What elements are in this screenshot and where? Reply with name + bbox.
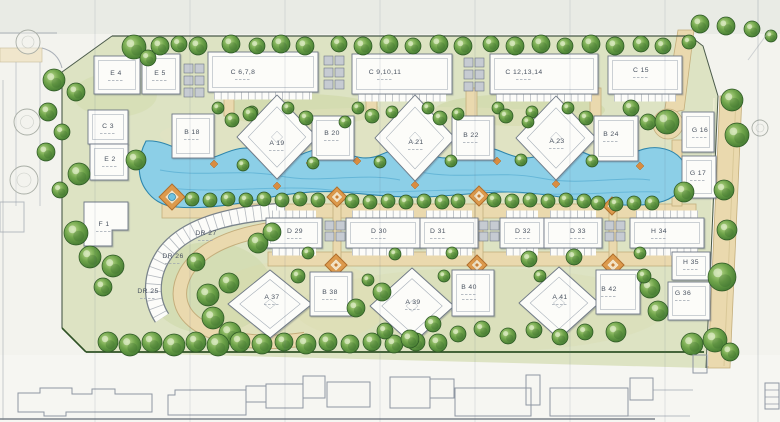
tree-icon xyxy=(239,193,253,207)
tree-shade xyxy=(457,113,462,118)
tree-icon xyxy=(452,108,464,120)
building-label-h35: H 35 xyxy=(683,259,699,266)
garage-building xyxy=(336,232,345,241)
tree-icon xyxy=(562,102,574,114)
tree-icon xyxy=(577,194,591,208)
tree-icon xyxy=(541,194,555,208)
garage-building xyxy=(325,232,334,241)
tree-shade xyxy=(480,327,487,334)
tree-icon xyxy=(606,37,624,55)
building-label-d32: D 32 xyxy=(515,228,531,235)
tree-icon xyxy=(249,38,265,54)
garage-building xyxy=(475,70,484,79)
tree-icon xyxy=(380,35,398,53)
tree-shade xyxy=(134,158,143,167)
tree-shade xyxy=(520,159,525,164)
tree-shade xyxy=(194,260,202,268)
tree-shade xyxy=(729,98,739,108)
tree-shade xyxy=(230,119,236,125)
tree-shade xyxy=(386,200,392,206)
outline-tree-icon xyxy=(14,109,40,135)
tree-shade xyxy=(287,107,292,112)
tree-shade xyxy=(208,199,214,205)
tree-shade xyxy=(74,90,82,98)
tree-icon xyxy=(487,193,501,207)
tree-shade xyxy=(296,275,302,281)
tree-icon xyxy=(272,35,290,53)
tree-shade xyxy=(127,343,137,353)
tree-icon xyxy=(474,321,490,337)
tree-shade xyxy=(51,78,61,88)
building-label-c91011: C 9,10,11 xyxy=(369,69,402,76)
scanned-site-plan: E 4E 5C 6,7,8C 9,10,11C 12,13,14C 15G 16… xyxy=(0,0,780,422)
tree-shade xyxy=(190,198,196,204)
tree-shade xyxy=(304,117,310,123)
tree-shade xyxy=(242,164,247,169)
tree-icon xyxy=(386,106,398,118)
building-label-b18: B 18 xyxy=(184,129,200,136)
tree-icon xyxy=(591,196,605,210)
tree-icon xyxy=(142,332,162,352)
tree-icon xyxy=(347,299,365,317)
tree-icon xyxy=(102,255,124,277)
tree-shade xyxy=(316,199,322,205)
tree-icon xyxy=(79,246,101,268)
tree-icon xyxy=(552,329,568,345)
building-label-g36: G 36 xyxy=(675,290,691,297)
building-footprint xyxy=(352,54,452,94)
tree-shade xyxy=(217,107,222,112)
tree-icon xyxy=(714,180,734,200)
tree-icon xyxy=(68,163,90,185)
tree-icon xyxy=(435,195,449,209)
tree-icon xyxy=(302,247,314,259)
tree-shade xyxy=(256,241,265,250)
tree-icon xyxy=(534,270,546,282)
tree-shade xyxy=(391,111,396,116)
tree-shade xyxy=(383,329,390,336)
tree-shade xyxy=(101,285,109,293)
tree-icon xyxy=(363,195,377,209)
tree-icon xyxy=(257,192,271,206)
tree-icon xyxy=(721,343,739,361)
tree-shade xyxy=(734,133,745,144)
tree-icon xyxy=(430,35,448,53)
tree-shade xyxy=(370,340,378,348)
tree-shade xyxy=(106,340,115,349)
tree-shade xyxy=(531,111,536,116)
tree-shade xyxy=(750,27,757,34)
tree-icon xyxy=(445,155,457,167)
building-label-a39: A 39 xyxy=(405,299,420,306)
tree-shade xyxy=(131,45,142,56)
tree-icon xyxy=(373,283,391,301)
building-label-b24: B 24 xyxy=(603,131,619,138)
tree-shade xyxy=(150,340,159,349)
garage-building xyxy=(479,232,488,241)
tree-icon xyxy=(500,328,516,344)
tree-icon xyxy=(222,35,240,53)
tree-icon xyxy=(219,273,239,293)
tree-icon xyxy=(203,193,217,207)
garage-building xyxy=(324,68,333,77)
tree-icon xyxy=(399,195,413,209)
tree-icon xyxy=(405,38,421,54)
tree-shade xyxy=(582,200,588,206)
tree-shade xyxy=(642,275,648,281)
garage-building xyxy=(324,80,333,89)
tree-shade xyxy=(370,115,376,121)
garage-building xyxy=(464,58,473,67)
building-footprint xyxy=(672,252,710,280)
tree-icon xyxy=(98,332,118,352)
building-b24 xyxy=(594,116,638,161)
tree-icon xyxy=(566,249,582,265)
building-h35 xyxy=(672,252,710,280)
garage-building xyxy=(490,221,499,230)
tree-shade xyxy=(461,44,469,52)
tree-icon xyxy=(634,247,646,259)
garage-building xyxy=(184,64,193,73)
tree-icon xyxy=(319,333,337,351)
building-label-dr27: DR 27 xyxy=(195,230,216,237)
building-label-d31: D 31 xyxy=(430,228,446,235)
building-label-a37: A 37 xyxy=(264,294,279,301)
building-footprint xyxy=(172,114,214,158)
tree-shade xyxy=(438,117,444,123)
tree-icon xyxy=(126,150,146,170)
garage-building xyxy=(184,76,193,85)
garage-building xyxy=(335,56,344,65)
tree-icon xyxy=(237,159,249,171)
building-footprint xyxy=(452,270,494,316)
tree-icon xyxy=(640,114,656,130)
tree-shade xyxy=(427,107,432,112)
garage-building xyxy=(605,221,614,230)
garage-building xyxy=(616,232,625,241)
tree-icon xyxy=(52,182,68,198)
tree-icon xyxy=(446,247,458,259)
garage-building xyxy=(475,58,484,67)
tree-shade xyxy=(205,293,215,303)
tree-shade xyxy=(725,228,734,237)
tree-shade xyxy=(229,42,237,50)
tree-shade xyxy=(357,107,362,112)
tree-icon xyxy=(171,36,187,52)
tree-icon xyxy=(422,102,434,114)
tree-shade xyxy=(262,198,268,204)
tree-shade xyxy=(614,203,620,209)
tree-shade xyxy=(614,330,623,339)
tree-shade xyxy=(656,309,665,318)
tree-icon xyxy=(119,334,141,356)
tree-shade xyxy=(639,42,646,49)
building-label-a21: A 21 xyxy=(408,139,423,146)
building-label-dr25: DR 25 xyxy=(137,288,158,295)
garage-building xyxy=(195,76,204,85)
tree-shade xyxy=(510,200,516,206)
tree-icon xyxy=(717,220,737,240)
tree-icon xyxy=(352,102,364,114)
tree-icon xyxy=(339,116,351,128)
tree-icon xyxy=(39,103,57,121)
tree-shade xyxy=(451,252,456,257)
tree-icon xyxy=(293,192,307,206)
tree-shade xyxy=(422,200,428,206)
tree-shade xyxy=(312,162,317,167)
tree-shade xyxy=(110,264,120,274)
tree-icon xyxy=(627,196,641,210)
tree-icon xyxy=(433,111,447,125)
building-c121314 xyxy=(490,54,598,98)
tree-icon xyxy=(609,197,623,211)
tree-shade xyxy=(238,340,247,349)
tree-shade xyxy=(368,201,374,207)
garage-building xyxy=(479,221,488,230)
tree-icon xyxy=(708,263,736,291)
tree-icon xyxy=(243,107,257,121)
tree-shade xyxy=(632,202,638,208)
tree-icon xyxy=(230,332,250,352)
tree-icon xyxy=(263,223,281,241)
building-label-c15: C 15 xyxy=(633,67,649,74)
tree-shade xyxy=(492,199,498,205)
tree-shade xyxy=(44,150,52,158)
tree-icon xyxy=(389,248,401,260)
tree-shade xyxy=(646,120,653,127)
building-label-b20: B 20 xyxy=(324,130,340,137)
tree-icon xyxy=(637,269,651,283)
tree-shade xyxy=(260,342,269,351)
tree-shade xyxy=(210,316,220,326)
tree-icon xyxy=(354,37,372,55)
tree-shade xyxy=(719,274,732,287)
tree-shade xyxy=(60,130,67,137)
tree-shade xyxy=(456,332,463,339)
tree-shade xyxy=(76,172,86,182)
tree-outline xyxy=(10,166,38,194)
garage-building xyxy=(490,232,499,241)
tree-shade xyxy=(255,44,262,51)
tree-icon xyxy=(582,35,600,53)
tree-icon xyxy=(252,334,272,354)
tree-icon xyxy=(64,221,88,245)
tree-shade xyxy=(367,279,372,284)
building-c678 xyxy=(208,52,318,96)
tree-icon xyxy=(483,36,499,52)
tree-icon xyxy=(655,38,671,54)
building-b40 xyxy=(452,270,494,316)
building-label-c121314: C 12,13,14 xyxy=(505,69,542,76)
tree-shade xyxy=(194,340,203,349)
tree-shade xyxy=(770,35,775,40)
tree-shade xyxy=(648,286,657,295)
tree-icon xyxy=(450,326,466,342)
tree-shade xyxy=(307,252,312,257)
tree-shade xyxy=(528,199,534,205)
garage-building xyxy=(605,232,614,241)
tree-shade xyxy=(361,44,369,52)
tree-icon xyxy=(140,50,156,66)
tree-icon xyxy=(682,35,696,49)
tree-icon xyxy=(94,278,112,296)
garage-building xyxy=(335,68,344,77)
tree-shade xyxy=(46,110,54,118)
tree-shade xyxy=(527,257,534,264)
tree-icon xyxy=(189,37,207,55)
tree-shade xyxy=(58,188,65,195)
tree-icon xyxy=(429,334,447,352)
tree-shade xyxy=(270,230,278,238)
building-label-b38: B 38 xyxy=(322,289,338,296)
building-label-e2: E 2 xyxy=(104,156,115,163)
tree-shade xyxy=(404,201,410,207)
tree-shade xyxy=(177,42,184,49)
tree-outline xyxy=(14,109,40,135)
tree-shade xyxy=(440,201,446,207)
site-plan-canvas: E 4E 5C 6,7,8C 9,10,11C 12,13,14C 15G 16… xyxy=(0,0,780,422)
tree-shade xyxy=(227,281,236,290)
tree-icon xyxy=(623,100,639,116)
tree-icon xyxy=(296,334,316,354)
tree-shade xyxy=(584,117,590,123)
tree-shade xyxy=(504,115,510,121)
tree-icon xyxy=(606,322,626,342)
building-label-c3: C 3 xyxy=(102,123,114,130)
tree-shade xyxy=(146,56,153,63)
tree-shade xyxy=(596,202,602,208)
building-label-e5: E 5 xyxy=(154,70,165,77)
tree-icon xyxy=(526,322,542,338)
tree-shade xyxy=(215,343,225,353)
tree-icon xyxy=(225,113,239,127)
garage-building xyxy=(324,56,333,65)
building-b18 xyxy=(172,114,214,158)
tree-shade xyxy=(411,44,418,51)
building-c91011 xyxy=(352,54,452,98)
tree-icon xyxy=(207,334,229,356)
tree-shade xyxy=(489,42,496,49)
tree-icon xyxy=(202,307,224,329)
garage-building xyxy=(325,221,334,230)
tree-shade xyxy=(437,42,445,50)
tree-shade xyxy=(337,42,344,49)
tree-shade xyxy=(539,42,547,50)
tree-shade xyxy=(572,255,579,262)
outline-tree-icon xyxy=(10,166,38,194)
tree-icon xyxy=(645,196,659,210)
tree-shade xyxy=(532,328,539,335)
tree-icon xyxy=(296,37,314,55)
tree-shade xyxy=(326,340,334,348)
tree-shade xyxy=(226,198,232,204)
tree-icon xyxy=(681,333,703,355)
tree-icon xyxy=(633,36,649,52)
tree-icon xyxy=(275,193,289,207)
tree-icon xyxy=(417,194,431,208)
garage-building xyxy=(195,88,204,97)
tree-shade xyxy=(558,335,565,342)
tree-shade xyxy=(436,341,444,349)
tree-icon xyxy=(185,192,199,206)
tree-shade xyxy=(158,44,166,52)
garage-building xyxy=(184,88,193,97)
building-label-d29: D 29 xyxy=(287,228,303,235)
tree-shade xyxy=(650,202,656,208)
tree-icon xyxy=(307,157,319,169)
building-label-b42: B 42 xyxy=(601,286,617,293)
tree-icon xyxy=(67,83,85,101)
tree-icon xyxy=(586,155,598,167)
garage-building xyxy=(336,221,345,230)
tree-shade xyxy=(456,200,462,206)
garage-building xyxy=(475,82,484,91)
building-label-g16: G 16 xyxy=(692,127,708,134)
tree-icon xyxy=(451,194,465,208)
tree-icon xyxy=(345,194,359,208)
top-margin-band xyxy=(0,0,780,34)
fountain-basin xyxy=(169,194,176,201)
building-label-a41: A 41 xyxy=(552,294,567,301)
building-footprint xyxy=(208,52,318,92)
tree-icon xyxy=(365,109,379,123)
tree-shade xyxy=(431,322,438,329)
tree-shade xyxy=(722,188,731,197)
tree-icon xyxy=(197,284,219,306)
tree-icon xyxy=(401,330,419,348)
tree-shade xyxy=(689,342,699,352)
tree-shade xyxy=(513,44,521,52)
tree-icon xyxy=(499,109,513,123)
tree-icon xyxy=(341,335,359,353)
garage-building xyxy=(464,70,473,79)
tree-shade xyxy=(682,190,691,199)
building-d31 xyxy=(420,214,478,252)
tree-shade xyxy=(613,44,621,52)
tree-shade xyxy=(196,44,204,52)
tree-icon xyxy=(362,274,374,286)
tree-icon xyxy=(282,102,294,114)
tree-shade xyxy=(350,200,356,206)
tree-shade xyxy=(344,121,349,126)
building-label-c678: C 6,7,8 xyxy=(231,69,256,76)
tree-icon xyxy=(331,36,347,52)
tree-shade xyxy=(639,252,644,257)
tree-shade xyxy=(248,113,254,119)
tree-icon xyxy=(523,193,537,207)
tree-icon xyxy=(37,143,55,161)
tree-shade xyxy=(387,42,395,50)
tree-icon xyxy=(691,15,709,33)
tree-icon xyxy=(54,124,70,140)
tree-shade xyxy=(354,306,362,314)
garage-building xyxy=(195,64,204,73)
tree-shade xyxy=(298,198,304,204)
building-label-dr26: DR 26 xyxy=(162,253,183,260)
garage-building xyxy=(616,221,625,230)
tree-icon xyxy=(425,316,441,332)
tree-icon xyxy=(532,35,550,53)
building-footprint xyxy=(608,56,682,94)
tree-icon xyxy=(438,270,450,282)
tree-icon xyxy=(577,324,593,340)
tree-shade xyxy=(589,42,597,50)
tree-icon xyxy=(299,111,313,125)
tree-shade xyxy=(629,106,636,113)
building-label-e4: E 4 xyxy=(110,70,121,77)
tree-shade xyxy=(450,160,455,165)
tree-shade xyxy=(698,22,706,30)
